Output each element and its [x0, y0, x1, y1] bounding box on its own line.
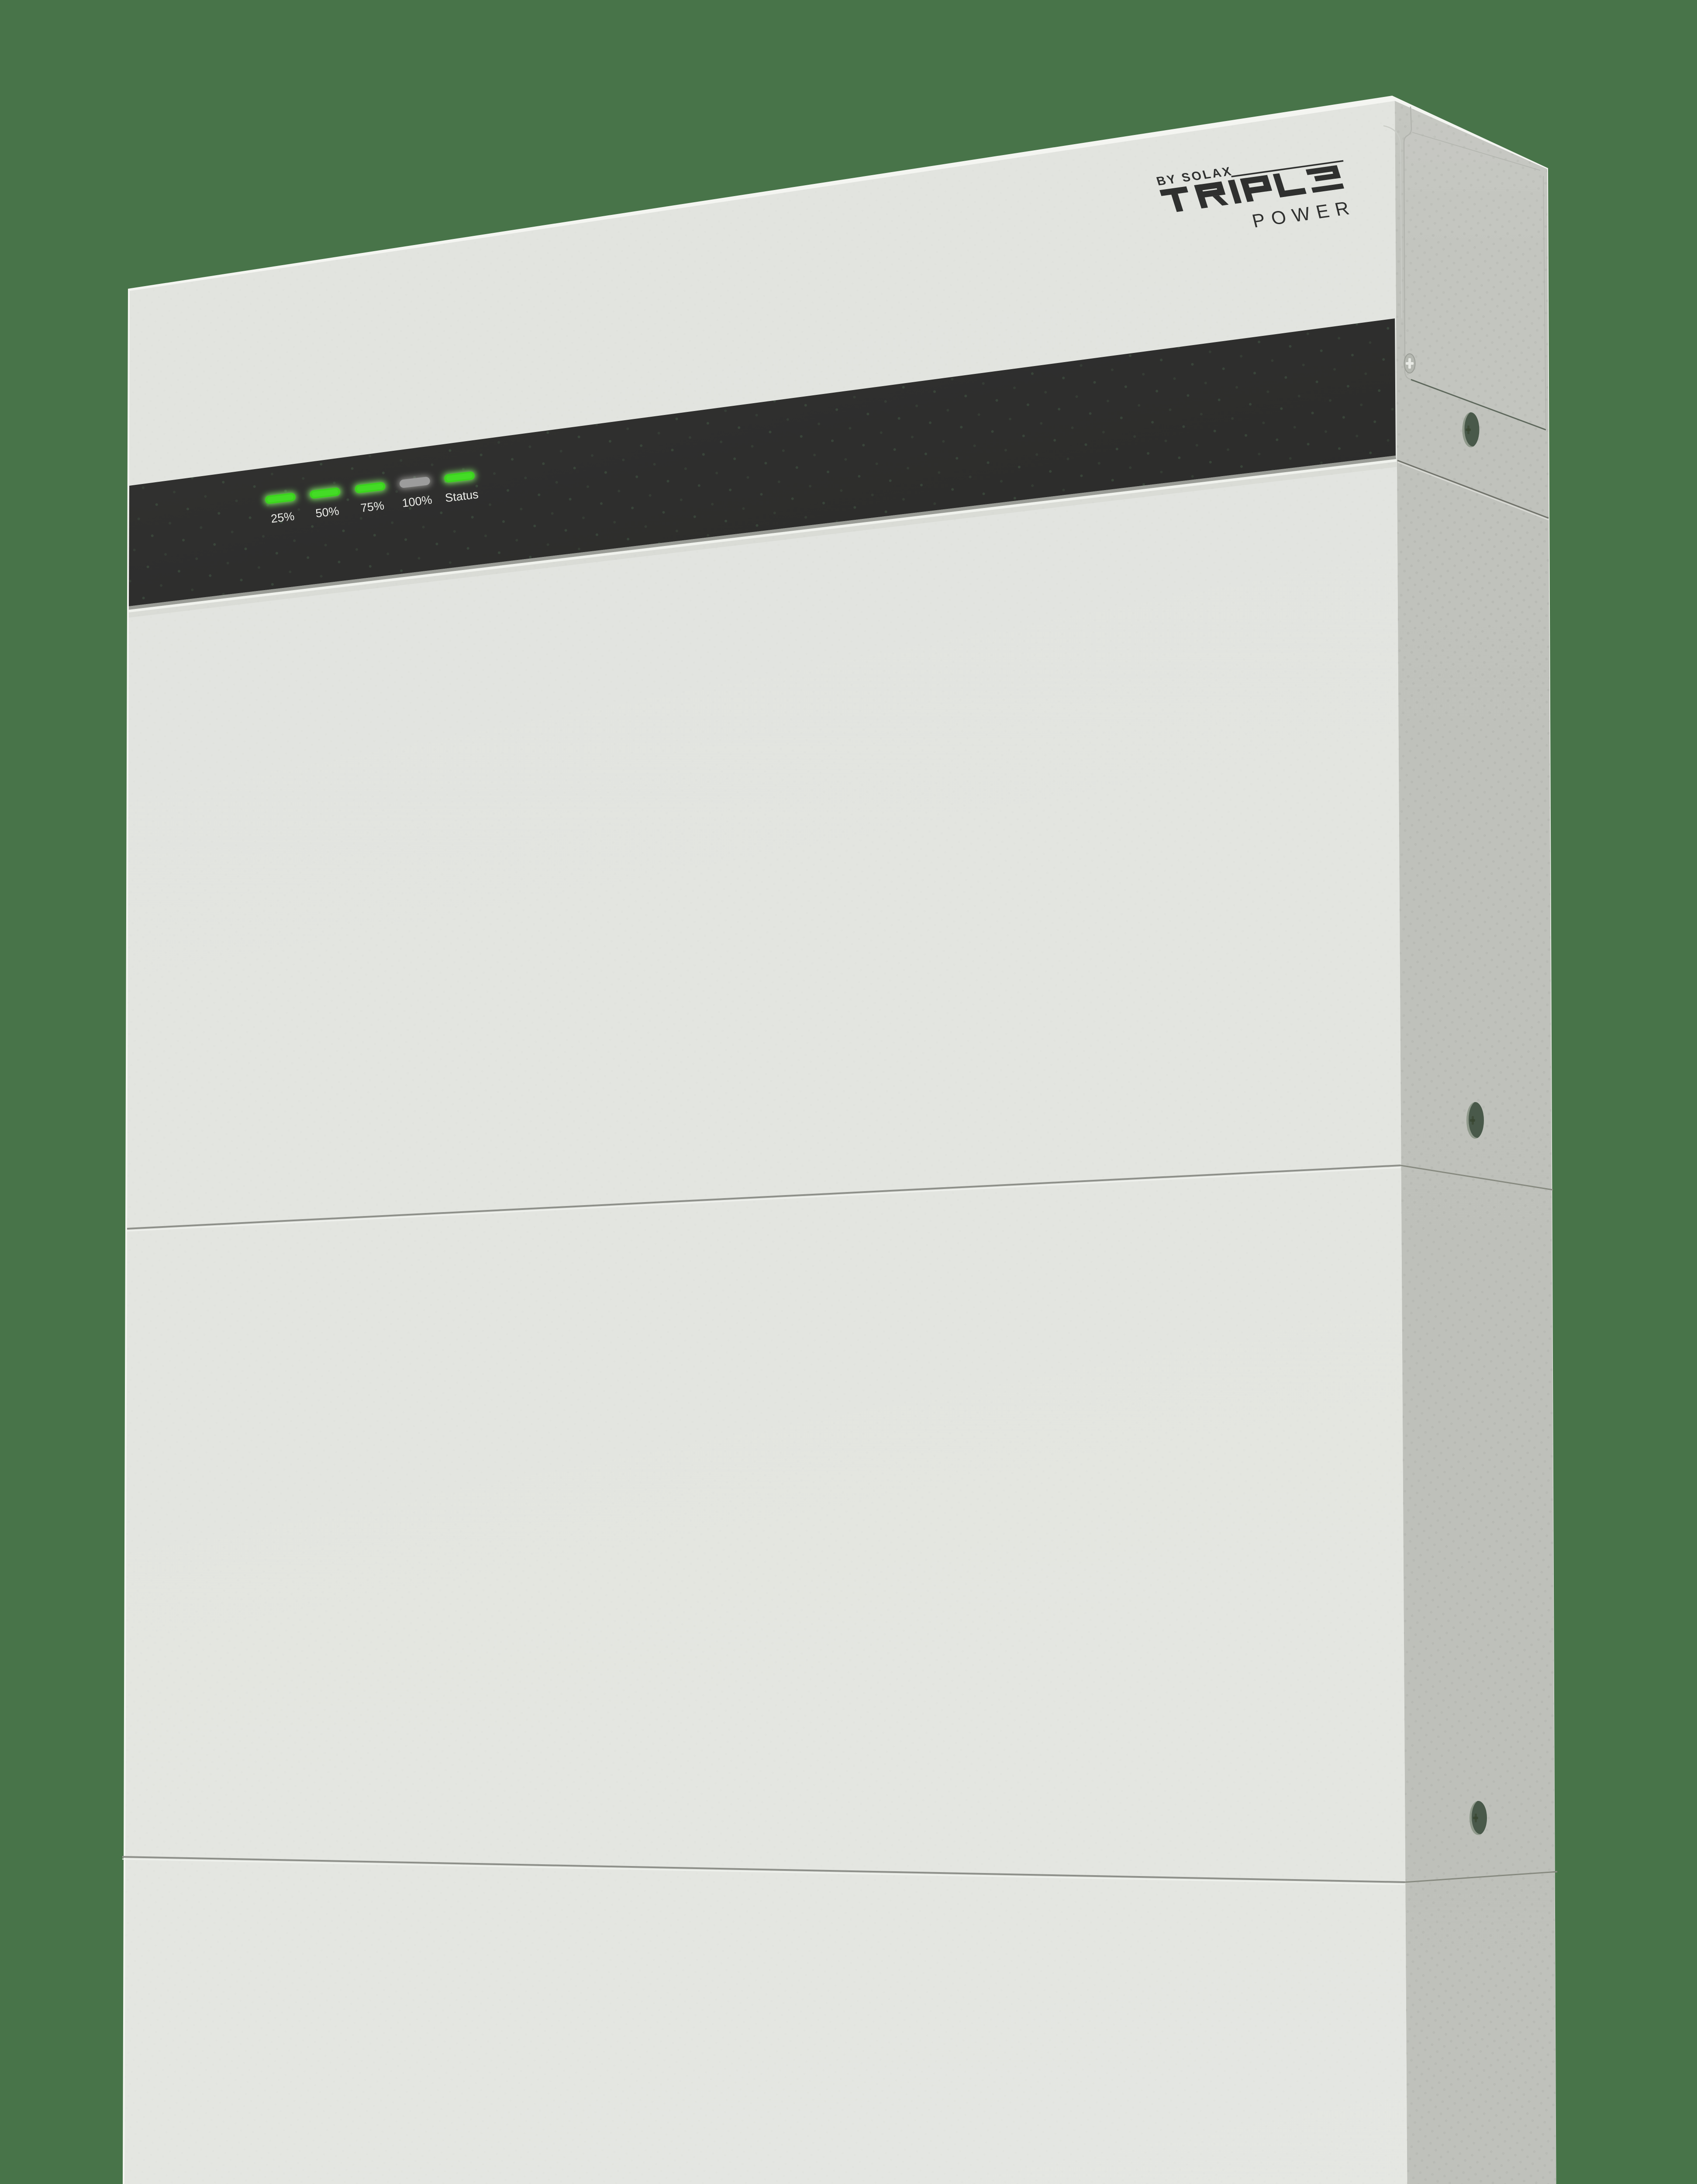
svg-text:75%: 75% [360, 499, 385, 515]
svg-text:25%: 25% [270, 510, 295, 525]
svg-text:50%: 50% [315, 504, 340, 520]
